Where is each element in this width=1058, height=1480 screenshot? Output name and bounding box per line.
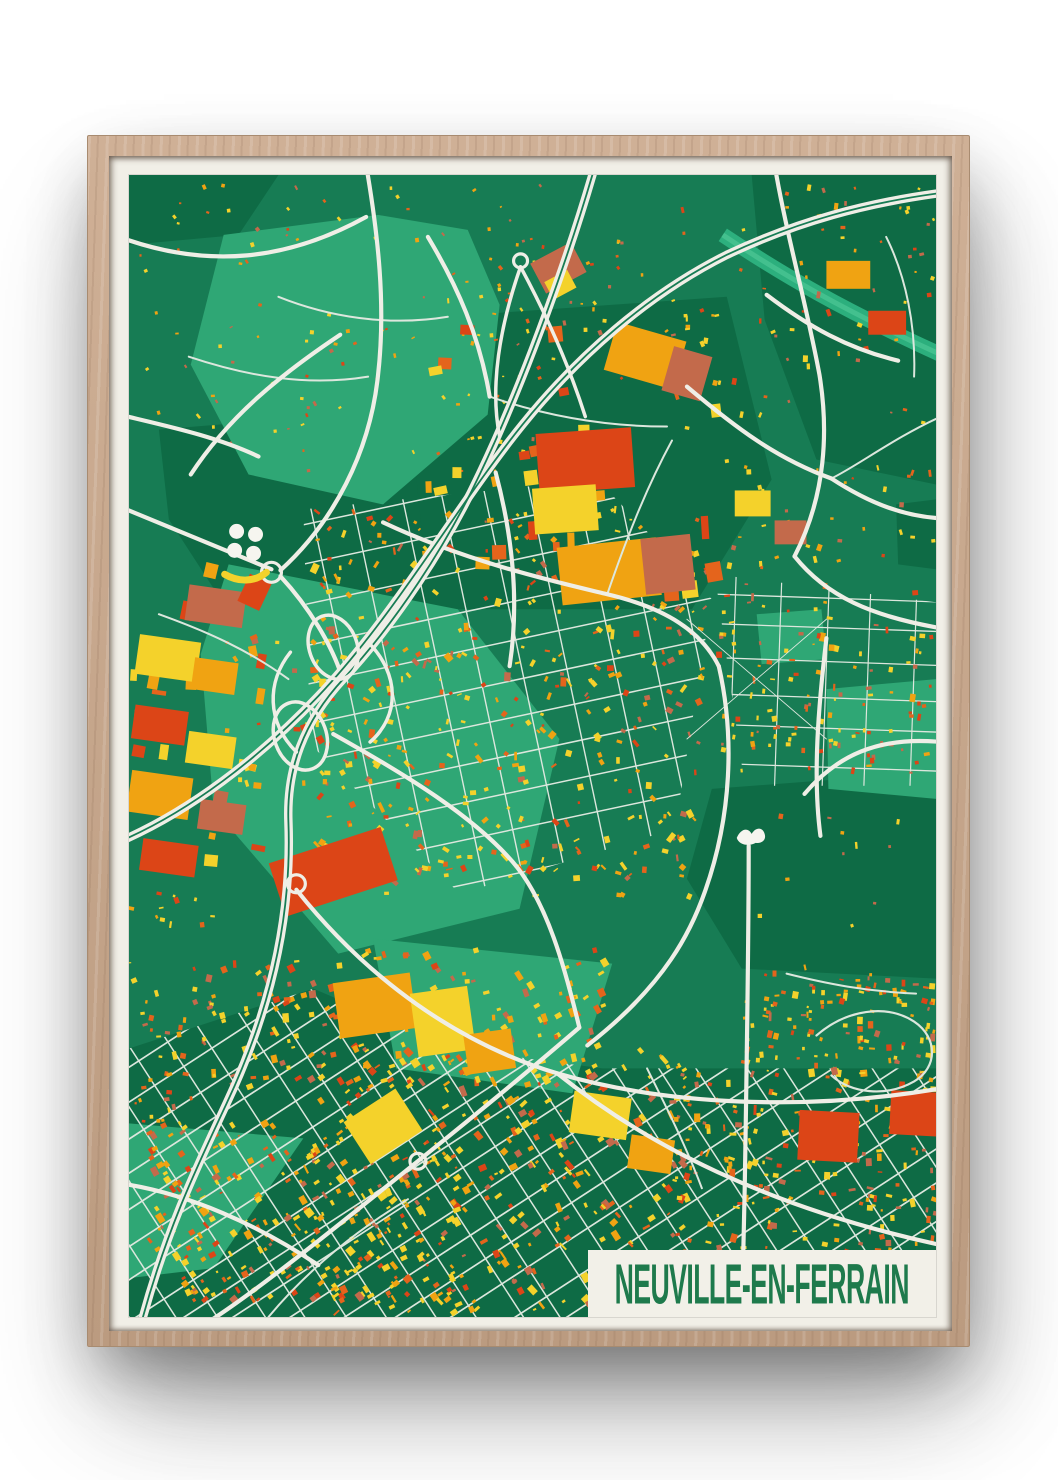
- poster-frame: NEUVILLE-EN-FERRAIN: [87, 135, 970, 1347]
- map-title-strip: NEUVILLE-EN-FERRAIN: [588, 1250, 936, 1317]
- poster-mat: NEUVILLE-EN-FERRAIN: [109, 156, 952, 1331]
- map-poster: NEUVILLE-EN-FERRAIN: [129, 175, 936, 1317]
- wall: NEUVILLE-EN-FERRAIN: [0, 0, 1058, 1480]
- map-title: NEUVILLE-EN-FERRAIN: [615, 1256, 909, 1312]
- city-map-graphic: [129, 175, 936, 1317]
